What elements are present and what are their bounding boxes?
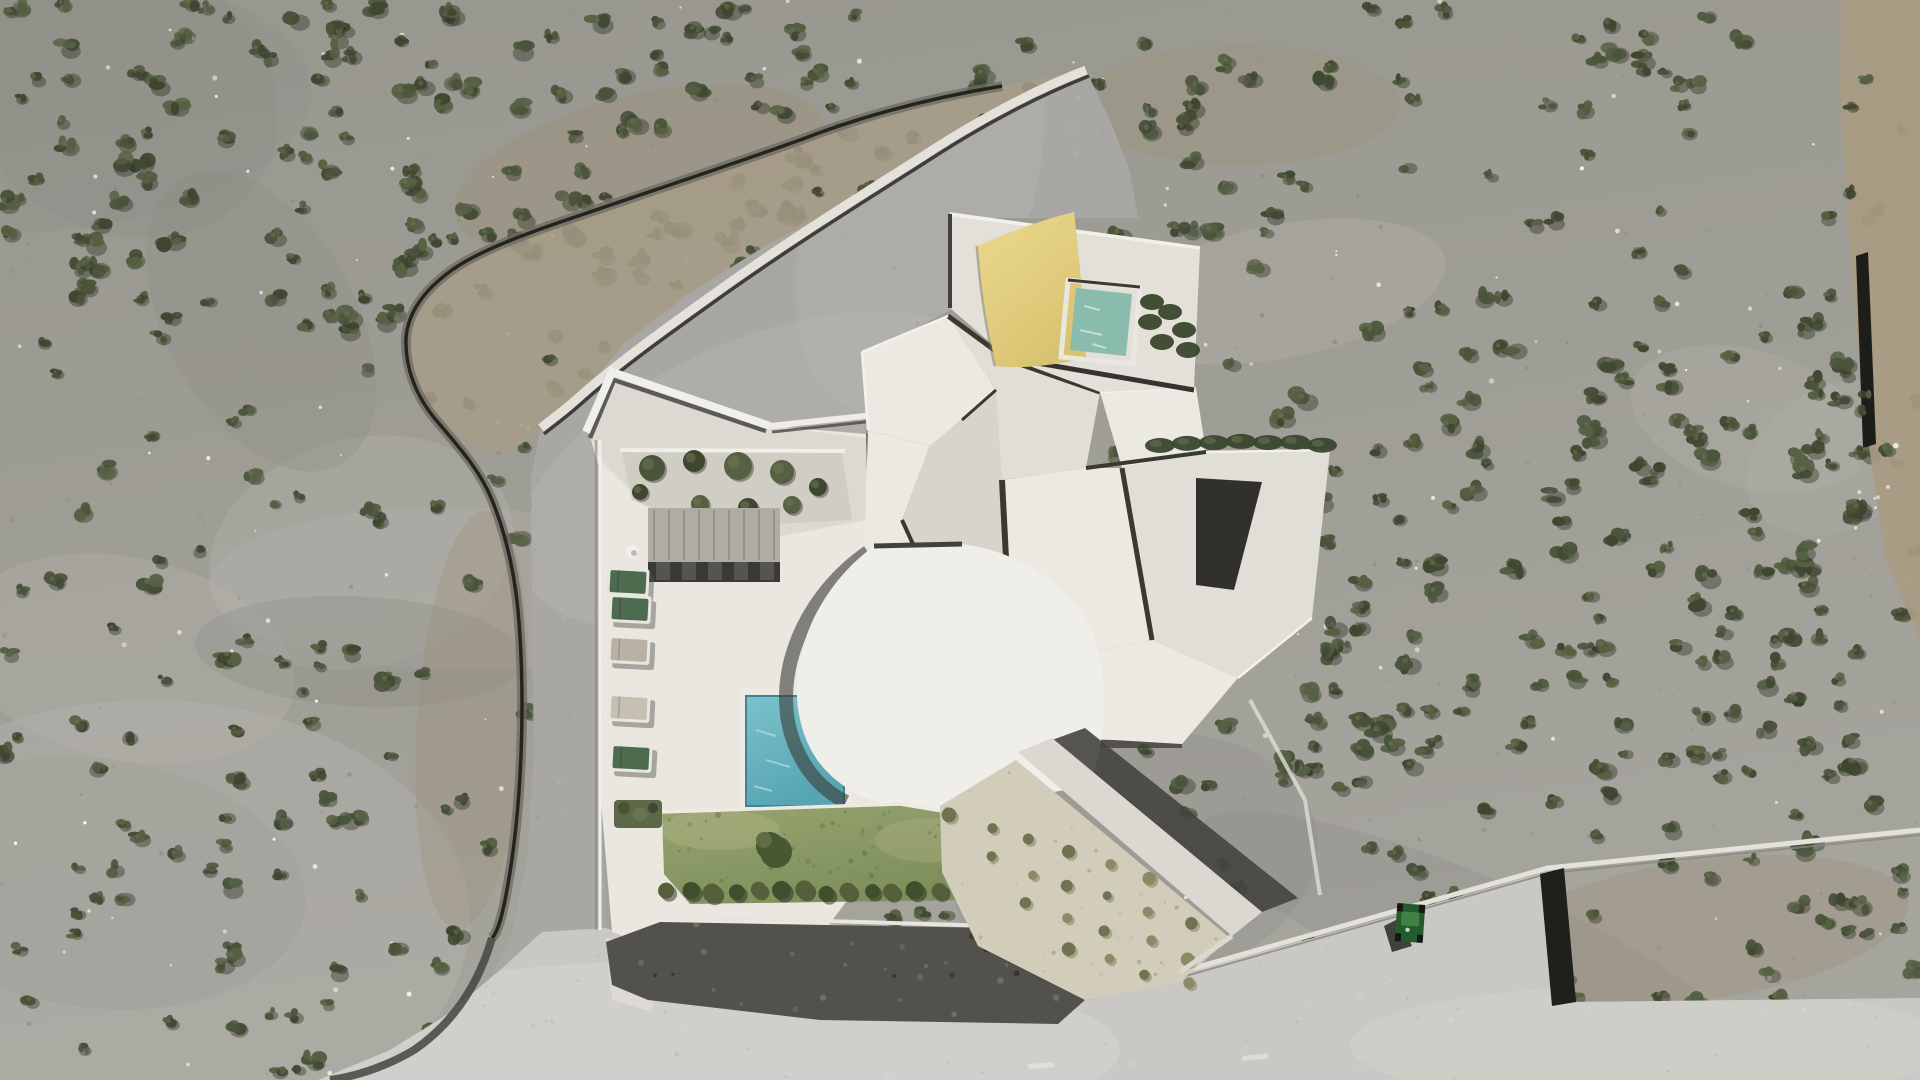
brown-patch [1080,45,1400,165]
fan-roof-slot [874,544,962,546]
aerial-photo [0,0,1920,1080]
tractor-cab [1401,911,1420,926]
sun-lounger [608,594,657,629]
sun-lounger [607,635,656,670]
side-table-shadow [631,550,637,556]
pergola [648,508,780,582]
sun-lounger [609,743,658,778]
scene-canvas [0,0,1920,1080]
sun-lounger [607,693,656,728]
planter-box [614,800,662,828]
planting-bed-wall [620,450,845,451]
